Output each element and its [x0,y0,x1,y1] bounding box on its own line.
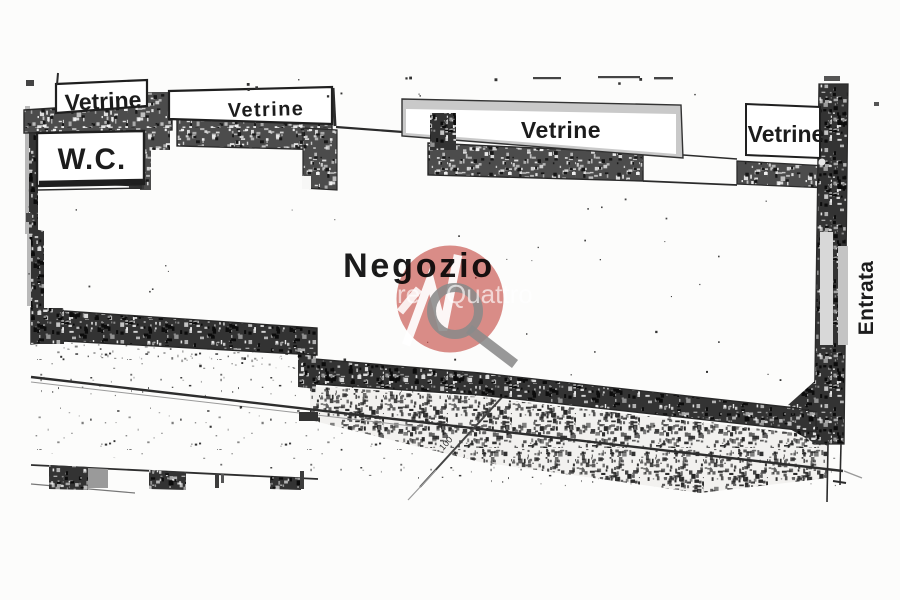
svg-text:Vetrine: Vetrine [521,117,601,143]
svg-text:Vetrine: Vetrine [228,98,305,122]
svg-text:Vetrine: Vetrine [748,121,825,147]
svg-text:Entrata: Entrata [855,261,878,335]
svg-text:Vetrine: Vetrine [64,86,142,115]
svg-text:W.C.: W.C. [58,143,127,176]
svg-text:Negozio: Negozio [343,247,495,285]
